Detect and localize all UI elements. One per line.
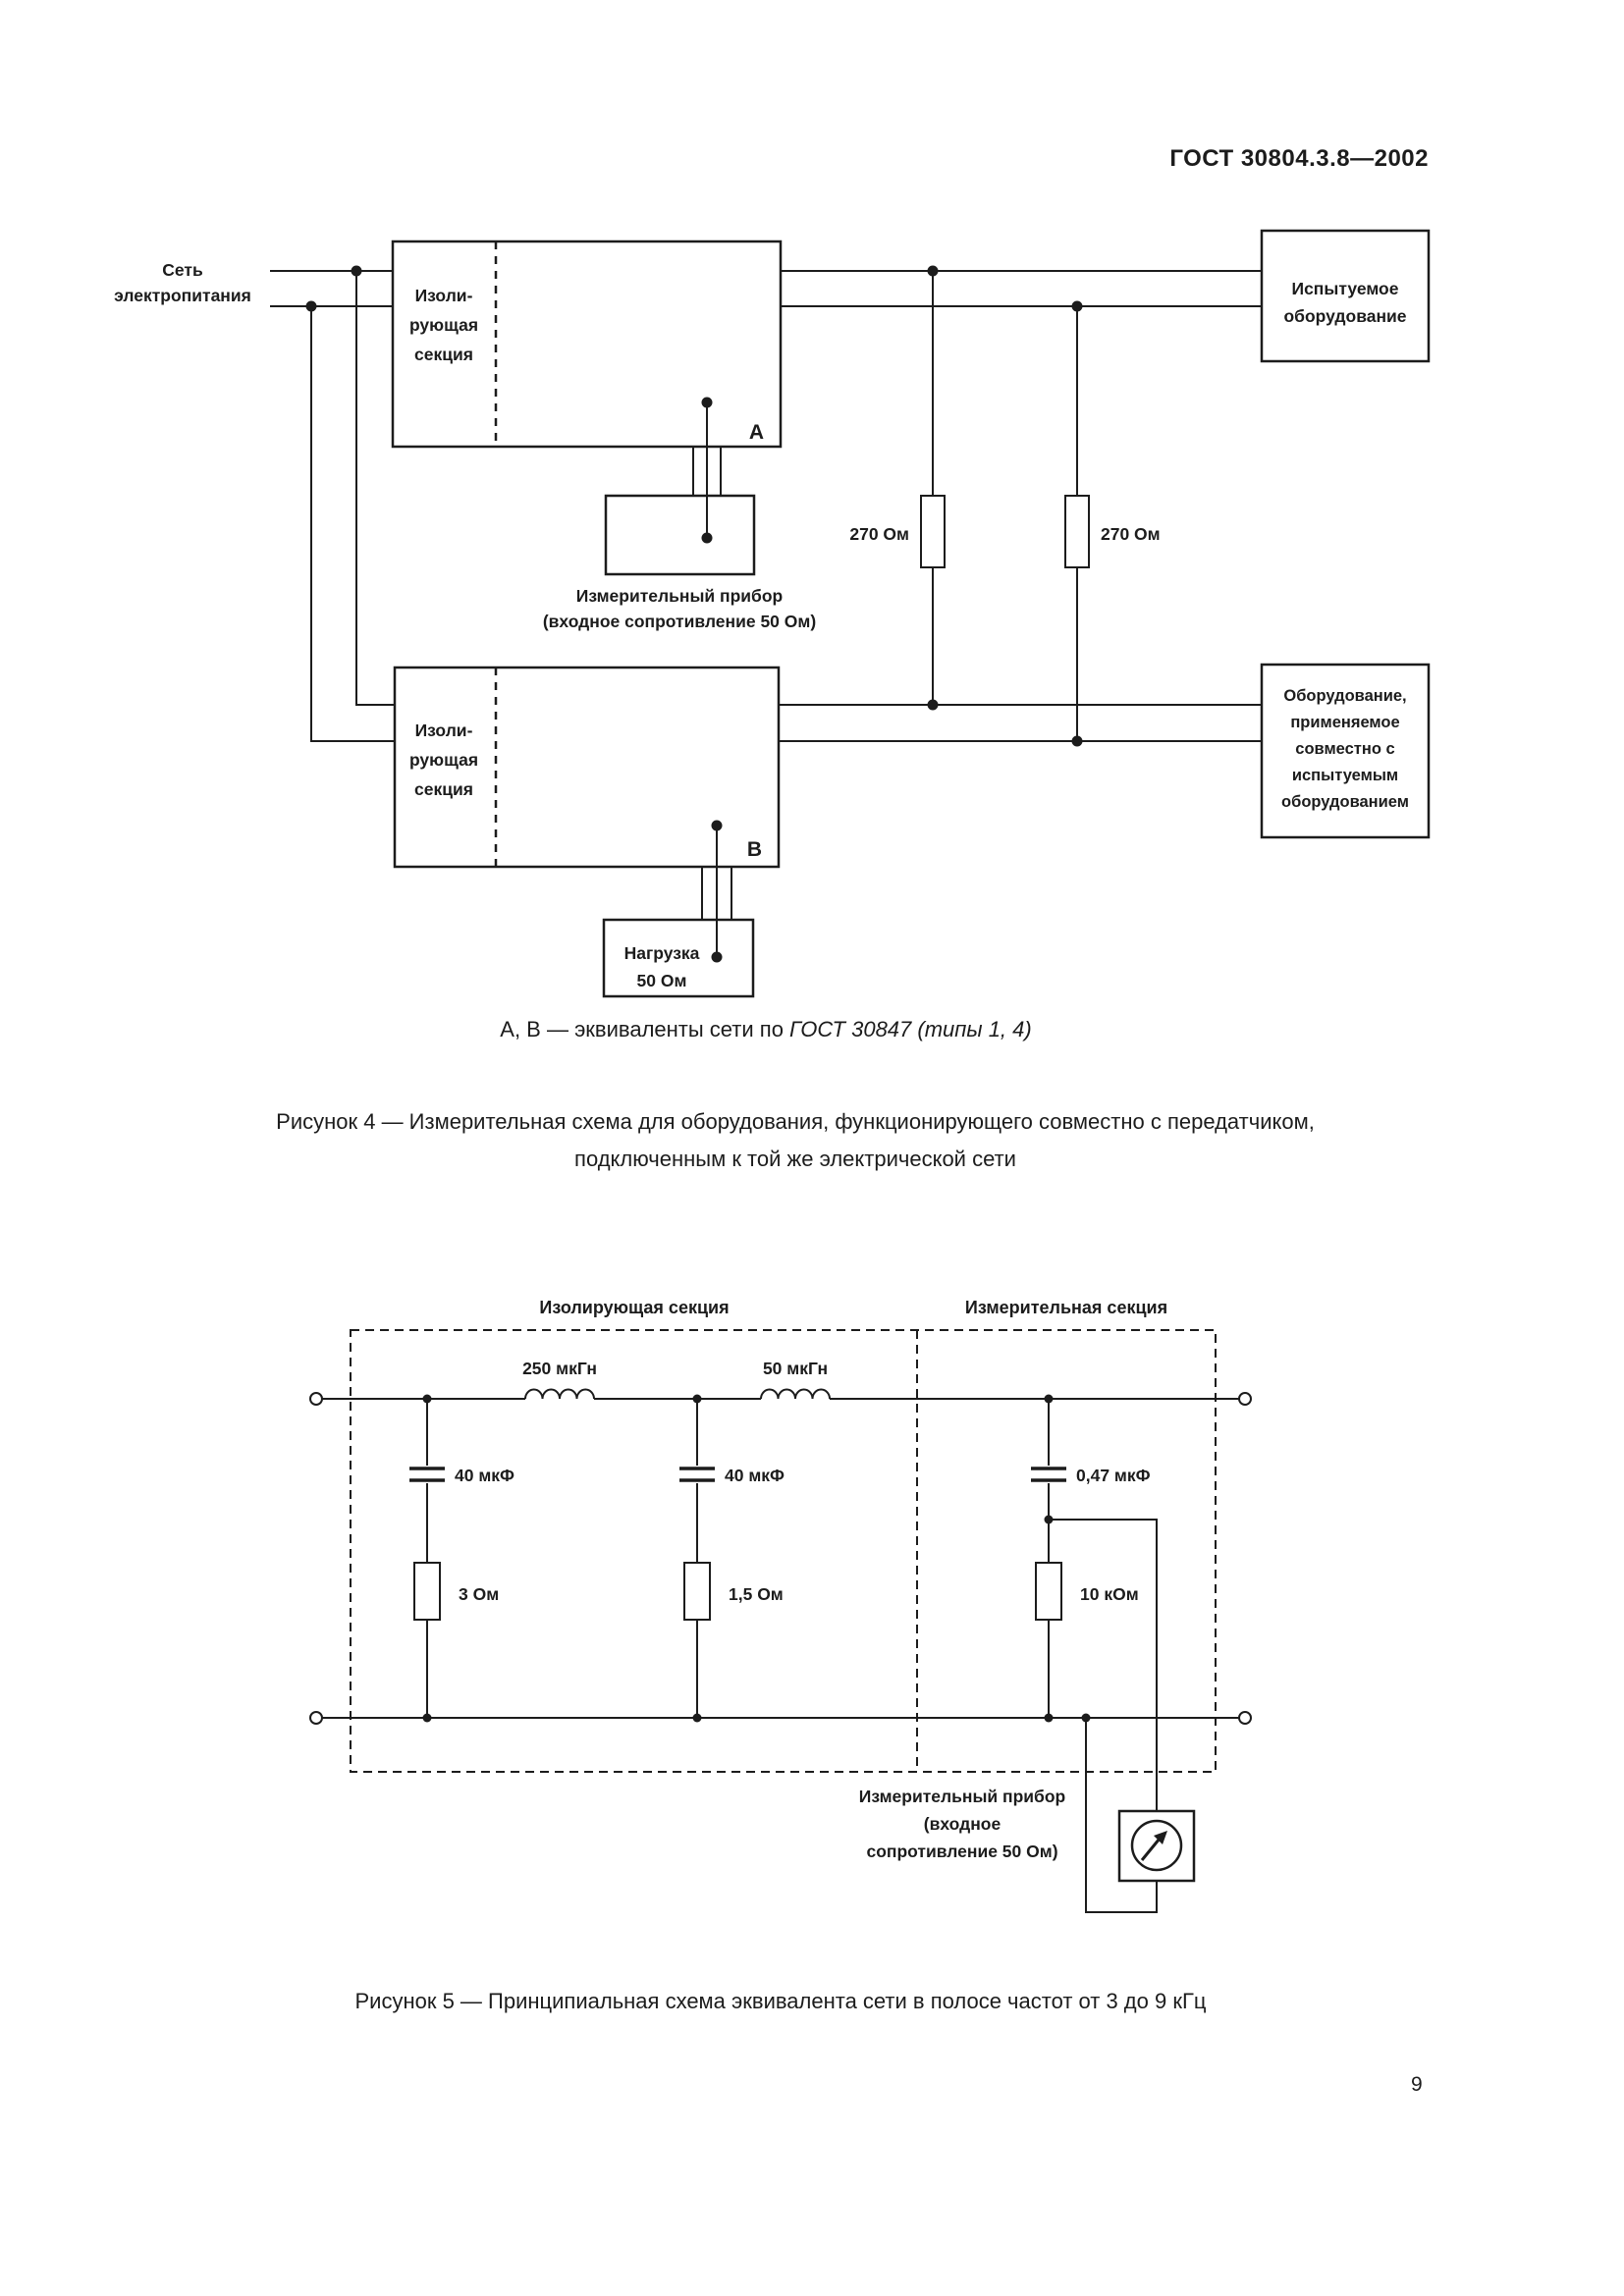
inductor-250uH-label: 250 мкГн [522,1359,597,1378]
meter-fig5-label-line1: Измерительный прибор [859,1787,1066,1806]
figure5-diagram: Изолирующая секция Измерительная секция … [310,1298,1251,1912]
isolating-section-title: Изолирующая секция [539,1298,729,1317]
resistor-270-right [1065,496,1089,567]
inductor-50uH-label: 50 мкГн [763,1359,828,1378]
capacitor-40uF-1-label: 40 мкФ [455,1466,514,1485]
junction-dot [712,952,723,963]
isolating-b-label-line3: секция [414,779,473,799]
input-terminal-bottom [310,1712,322,1724]
page-header: ГОСТ 30804.3.8—2002 [0,145,1429,173]
resistor-10kohm-label: 10 кОм [1080,1584,1139,1604]
document-page: Сеть электропитания 270 Ом 270 Ом Изоли- [0,0,1624,2296]
mains-label-line2: электропитания [114,286,251,305]
junction-dot [928,266,939,277]
junction-dot [423,1714,432,1723]
mains-label-line1: Сеть [162,260,203,280]
figure4-diagram: Сеть электропитания 270 Ом 270 Ом Изоли- [114,231,1429,996]
junction-dot [702,398,713,408]
resistor-1.5ohm-label: 1,5 Ом [729,1584,784,1604]
meter-fig5-label-line2: (входное [924,1814,1001,1834]
isolating-b-label-line2: рующая [409,750,478,770]
junction-dot [1045,1714,1054,1723]
wire [356,271,395,705]
aux-label-line3: совместно с [1295,740,1394,758]
aux-label-line4: испытуемым [1292,767,1398,784]
junction-dot [1045,1516,1054,1524]
junction-dot [928,700,939,711]
capacitor-40uF-2-label: 40 мкФ [725,1466,785,1485]
junction-dot [693,1395,702,1404]
inductor-50uH [761,1390,830,1400]
isolating-a-label-line3: секция [414,345,473,364]
resistor-270-left-label: 270 Ом [849,524,909,544]
junction-dot [1072,301,1083,312]
equivalent-a-label: А [749,421,764,444]
junction-dot [693,1714,702,1723]
aux-label-line2: применяемое [1290,714,1399,731]
junction-dot [1045,1395,1054,1404]
figure4-caption-line1: Рисунок 4 — Измерительная схема для обор… [0,1109,1591,1135]
meter-box-fig4 [606,496,754,574]
isolating-a-label-line2: рующая [409,315,478,335]
junction-dot [1072,736,1083,747]
junction-dot [712,821,723,831]
network-equivalent-outline [351,1330,1216,1772]
load-label-line1: Нагрузка [624,943,700,963]
figure5-caption: Рисунок 5 — Принципиальная схема эквивал… [0,1989,1561,2014]
meter-fig5-label-line3: сопротивление 50 Ом) [866,1842,1057,1861]
meter-fig4-label-line1: Измерительный прибор [576,586,784,606]
junction-dot [352,266,362,277]
eut-label-line2: оборудование [1283,306,1406,326]
resistor-3ohm [414,1563,440,1620]
input-terminal-top [310,1393,322,1405]
aux-label-line5: оборудованием [1281,793,1409,811]
page-number: 9 [1411,2073,1423,2097]
equivalent-b-label: В [747,838,762,861]
isolating-b-label-line1: Изоли- [415,721,473,740]
output-terminal-bottom [1239,1712,1251,1724]
meter-feed-wire [1049,1520,1157,1811]
junction-dot [1082,1714,1091,1723]
figure4-note: А, В — эквиваленты сети по ГОСТ 30847 (т… [0,1017,1532,1042]
eut-label-line1: Испытуемое [1292,279,1399,298]
resistor-3ohm-label: 3 Ом [459,1584,499,1604]
resistor-270-right-label: 270 Ом [1101,524,1161,544]
resistor-1.5ohm [684,1563,710,1620]
inductor-250uH [525,1390,594,1400]
aux-label-line1: Оборудование, [1283,687,1406,705]
junction-dot [306,301,317,312]
resistor-10kohm [1036,1563,1061,1620]
figure4-note-text: А, В — эквиваленты сети по [500,1017,789,1041]
measuring-section-title: Измерительная секция [965,1298,1167,1317]
junction-dot [702,533,713,544]
figure4-note-reference: ГОСТ 30847 (типы 1, 4) [789,1017,1032,1041]
isolating-a-label-line1: Изоли- [415,286,473,305]
capacitor-0.47uF-label: 0,47 мкФ [1076,1466,1151,1485]
load-label-line2: 50 Ом [637,971,687,990]
output-terminal-top [1239,1393,1251,1405]
resistor-270-left [921,496,945,567]
meter-dial [1132,1821,1181,1870]
junction-dot [423,1395,432,1404]
meter-fig4-label-line2: (входное сопротивление 50 Ом) [543,612,816,631]
wire [311,306,395,741]
figure4-caption-line2: подключенным к той же электрической сети [0,1147,1591,1172]
